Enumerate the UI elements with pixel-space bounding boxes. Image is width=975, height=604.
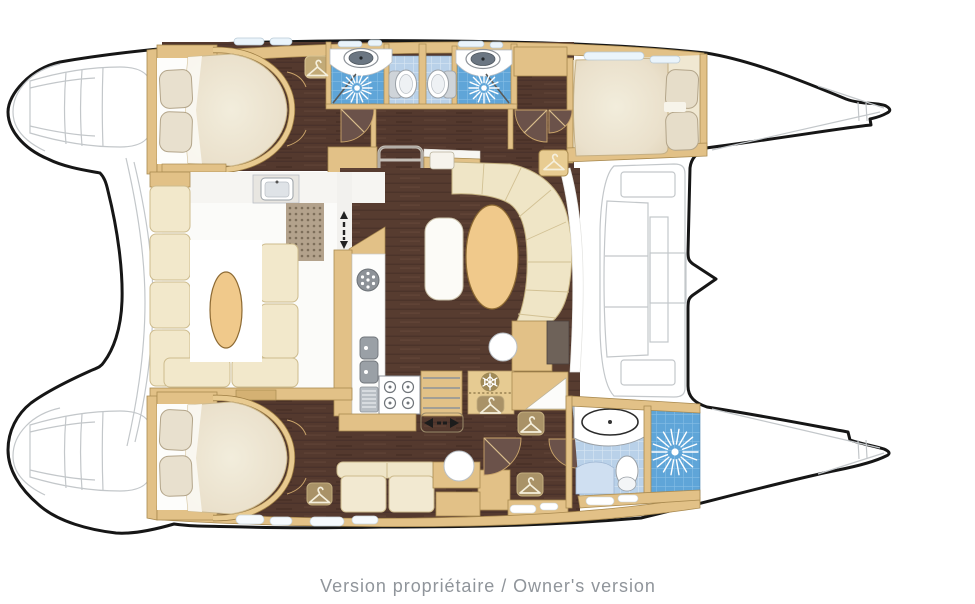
svg-text:Version propriétaire / Owner's: Version propriétaire / Owner's version xyxy=(320,576,656,596)
